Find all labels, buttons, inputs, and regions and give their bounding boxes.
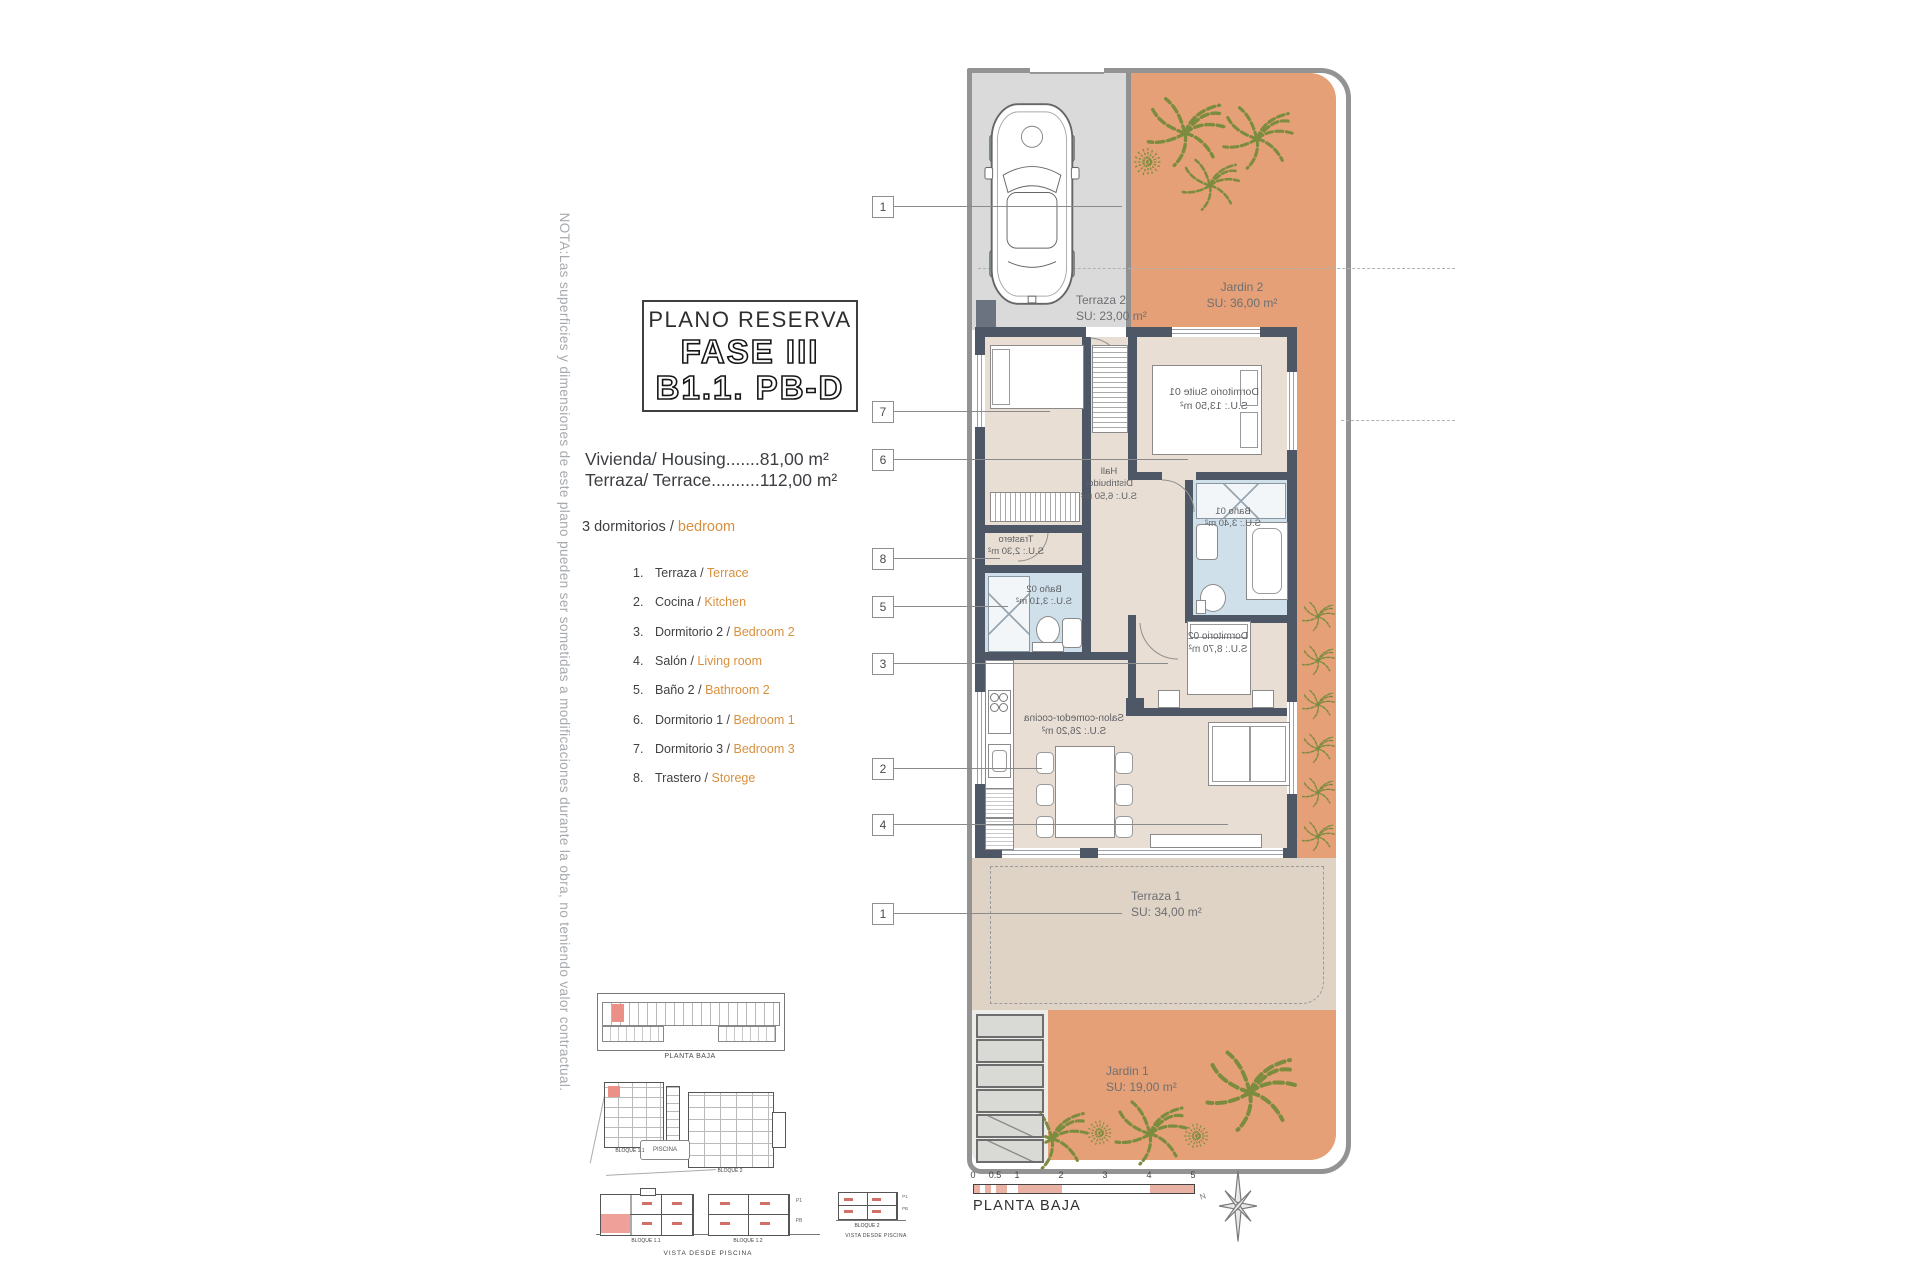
room-name: Hall [1072,466,1146,478]
legend-item-4: 4.Salón / Living room [633,654,873,672]
leader-line [892,606,1008,607]
appliance-box-1 [985,788,1014,818]
callout-2: 2 [872,758,894,780]
nightstand-dorm02-a [1158,690,1180,708]
callout-7: 7 [872,401,894,423]
label-salon: Salon-comedor-cocina S.U.: 26,20 m² [1008,712,1140,738]
room-area: SU: 23,00 m² [1076,309,1147,325]
pillow-suite-2 [1240,412,1258,448]
legend-num: 6. [633,713,655,727]
keyplan-strip-annex [718,1026,776,1042]
callout-number: 1 [880,907,887,921]
scale-bar [973,1184,1195,1194]
floor-label-pb: PB [792,1218,806,1224]
callout-1b: 1 [872,903,894,925]
planter-box [976,1139,1044,1163]
sofa-cushion [1212,726,1250,782]
legend-num: 3. [633,625,655,639]
bathtub-inner [1252,528,1282,594]
plan-caption: PLANTA BAJA [973,1198,1081,1214]
area-summary: Vivienda/ Housing.......81,00 m² Terraza… [585,449,837,492]
legend-es: Dormitorio 3 / [655,742,730,756]
callout-number: 2 [880,762,887,776]
callout-number: 8 [880,552,887,566]
site-block-annex [772,1112,786,1148]
site-bloque11-caption: BLOQUE 1.1 [600,1148,660,1154]
washbasin-bano02 [1062,618,1082,648]
legend-num: 2. [633,595,655,609]
legend-es: Dormitorio 1 / [655,713,730,727]
palm-tree-icon [1110,1092,1190,1172]
room-name: Baño 02 [1006,584,1082,596]
keyplan-strip [597,993,785,1051]
legend-es: Trastero / [655,771,708,785]
floor-label-p1: P1 [898,1194,912,1199]
phase-title: FASE III [681,335,820,369]
site-bloque2-caption: BLOQUE 2 [688,1168,772,1174]
room-name: Distribuidor [1072,478,1146,490]
room-area: S.U.: 6,50 m² [1072,491,1146,503]
elevation-building [708,1194,790,1236]
legend-es: Salón / [655,654,694,668]
terraza1-dashed-outline [990,866,1324,1004]
leader-line [892,663,1168,664]
leader-line [892,206,1122,207]
planter-box [976,1014,1044,1038]
callout-5: 5 [872,596,894,618]
room-name: Jardin 1 [1106,1064,1177,1080]
room-area: S.U.: 8,70 m² [1156,643,1280,656]
legend-item-5: 5.Baño 2 / Bathroom 2 [633,683,873,701]
label-trastero: Trastero S.U.: 2,30 m² [978,534,1054,559]
housing-area: Vivienda/ Housing.......81,00 m² [585,449,837,470]
room-name: Baño 01 [1196,506,1270,518]
door-arcs [960,60,1360,880]
unit-code-mark [672,1222,682,1225]
callout-number: 4 [880,818,887,832]
unit-code-mark [872,1198,881,1201]
chair [1115,784,1133,806]
callout-number: 5 [880,600,887,614]
unit-code-mark [760,1222,770,1225]
callout-number: 7 [880,405,887,419]
legend-item-7: 7.Dormitorio 3 / Bedroom 3 [633,742,873,760]
disclaimer-note-vertical: NOTA:Las superficies y dimensiones de es… [554,212,572,1092]
label-suite: Dormitorio Suite 01 S.U.: 13,50 m² [1148,386,1280,413]
elevation-building [838,1192,898,1220]
tick-label: 2 [1058,1170,1063,1180]
legend-en: Bedroom 1 [734,713,795,727]
legend-num: 7. [633,742,655,756]
callout-number: 6 [880,453,887,467]
callout-3: 3 [872,653,894,675]
tick-label: 5 [1190,1170,1195,1180]
room-area: SU: 34,00 m² [1131,905,1202,921]
callout-8: 8 [872,548,894,570]
legend-num: 8. [633,771,655,785]
floor-label-pb: PB [898,1206,912,1211]
room-name: Terraza 1 [1131,889,1202,905]
room-area: S.U.: 26,20 m² [1008,725,1140,738]
room-name: Dormitorio Suite 01 [1148,386,1280,400]
wardrobe-dorm3 [990,492,1080,522]
label-terraza2: Terraza 2 SU: 23,00 m² [1076,293,1147,324]
legend-item-2: 2.Cocina / Kitchen [633,595,873,613]
elevation-bloque2: P1 PB BLOQUE 2 VISTA DESDE PISCINA [836,1190,916,1244]
legend-es: Dormitorio 2 / [655,625,730,639]
bloque12-caption: BLOQUE 1.2 [708,1238,788,1244]
burner-icon [999,703,1008,712]
leader-line [892,459,1188,460]
tick-label: 0 [970,1170,975,1180]
nightstand-dorm02-b [1252,690,1274,708]
legend-en: Storege [712,771,756,785]
highlighted-unit [612,1004,624,1022]
room-area: S.U.: 3,40 m² [1196,518,1270,530]
legend-item-8: 8.Trastero / Storege [633,771,873,789]
legend-item-6: 6.Dormitorio 1 / Bedroom 1 [633,713,873,731]
roof-stub [640,1188,656,1196]
legend-en: Bathroom 2 [705,683,770,697]
callout-4: 4 [872,814,894,836]
site-plan: PISCINA BLOQUE 1.1 BLOQUE 2 [596,1076,792,1178]
bedrooms-line: 3 dormitorios / bedroom [582,519,735,535]
room-area: SU: 36,00 m² [1196,296,1288,312]
label-hall: Hall Distribuidor S.U.: 6,50 m² [1072,466,1146,503]
callout-1: 1 [872,196,894,218]
burner-icon [990,693,999,702]
legend-en: Kitchen [704,595,746,609]
floor-label-p1: P1 [792,1198,806,1204]
leader-line [892,558,1000,559]
legend-num: 1. [633,566,655,580]
unit-code-mark [760,1202,770,1205]
vista-caption: VISTA DESDE PISCINA [828,1233,924,1239]
callout-number: 3 [880,657,887,671]
tick-label: 3 [1102,1170,1107,1180]
toilet-tank-bano01 [1196,600,1206,614]
legend-en: Terrace [707,566,749,580]
room-area: S.U.: 2,30 m² [978,546,1054,558]
keyplan-strip-units [602,1002,780,1026]
chair [1036,816,1054,838]
legend-en: Bedroom 3 [734,742,795,756]
legend-en: Living room [697,654,762,668]
site-block-2 [688,1092,774,1168]
wardrobe-hall [1092,345,1128,433]
planter-box [976,1064,1044,1088]
room-name: Trastero [978,534,1054,546]
sofa-cushion [1250,726,1286,782]
unit-code: B1.1. PB-D [656,371,845,405]
legend-item-1: 1.Terraza / Terrace [633,566,873,584]
floor-plan-sheet: NOTA:Las superficies y dimensiones de es… [0,0,1920,1280]
legend-en: Bedroom 2 [734,625,795,639]
bloque2-caption: BLOQUE 2 [836,1223,898,1229]
plan-title: PLANO RESERVA [648,307,851,333]
chair [1115,816,1133,838]
terrace-area: Terraza/ Terrace..........112,00 m² [585,470,837,491]
room-name: Salon-comedor-cocina [1008,712,1140,725]
tick-label: 4 [1146,1170,1151,1180]
north-letter: N [1199,1191,1208,1201]
site-block-column [666,1086,680,1144]
unit-code-mark [642,1202,652,1205]
appliance-box-2 [985,818,1014,850]
title-block: PLANO RESERVA FASE III B1.1. PB-D [642,300,858,412]
chair [1115,752,1133,774]
leader-line [892,824,1228,825]
legend-es: Cocina / [655,595,701,609]
tv-bench [1150,834,1262,848]
highlighted-unit [601,1214,630,1233]
toilet-bano02 [1036,616,1060,644]
tick-label: 0.5 [989,1170,1002,1180]
room-area: S.U.: 3,10 m² [1006,596,1082,608]
planter-box [976,1114,1044,1138]
planter-box [976,1039,1044,1063]
room-name: Jardin 2 [1196,280,1288,296]
vista-caption: VISTA DESDE PISCINA [592,1250,824,1257]
room-area: S.U.: 13,50 m² [1148,400,1280,414]
tick-label: 1 [1014,1170,1019,1180]
pillow-dorm3 [992,349,1010,405]
toilet-tank-bano02 [1032,642,1064,652]
label-jardin1: Jardin 1 SU: 19,00 m² [1106,1064,1177,1095]
label-dorm02: Dormitorio 02 S.U.: 8,70 m² [1156,630,1280,656]
highlighted-unit [608,1086,620,1097]
scale-bar-ticks: 0 0.5 1 2 3 4 5 [973,1170,1203,1182]
unit-code-mark [720,1202,730,1205]
label-bano01: Baño 01 S.U.: 3,40 m² [1196,506,1270,531]
leader-line [892,913,1122,914]
unit-code-mark [720,1222,730,1225]
unit-code-mark [872,1210,881,1213]
callout-6: 6 [872,449,894,471]
burner-icon [990,703,999,712]
large-bush-icon [1200,1040,1300,1140]
ground-line [836,1220,906,1221]
elevation-bloque1: P1 PB BLOQUE 1.1 BLOQUE 1.2 VISTA DESDE … [592,1186,824,1260]
room-name: Dormitorio 02 [1156,630,1280,643]
leader-line [892,411,1050,412]
chair [1036,784,1054,806]
unit-code-mark [844,1210,853,1213]
legend-item-3: 3.Dormitorio 2 / Bedroom 2 [633,625,873,643]
leader-line [892,768,1042,769]
legend-num: 5. [633,683,655,697]
label-terraza1: Terraza 1 SU: 34,00 m² [1131,889,1202,920]
burner-icon [999,693,1008,702]
bedrooms-en: bedroom [678,519,735,535]
room-name: Terraza 2 [1076,293,1147,309]
legend-es: Terraza / [655,566,704,580]
bloque11-caption: BLOQUE 1.1 [600,1238,692,1244]
unit-code-mark [642,1222,652,1225]
bedrooms-es: 3 dormitorios / [582,519,674,535]
room-area: SU: 19,00 m² [1106,1080,1177,1096]
label-jardin2: Jardin 2 SU: 36,00 m² [1196,280,1288,311]
callout-number: 1 [880,200,887,214]
label-bano02: Baño 02 S.U.: 3,10 m² [1006,584,1082,609]
unit-code-mark [844,1198,853,1201]
unit-code-mark [672,1202,682,1205]
chair [1036,752,1054,774]
planter-box [976,1089,1044,1113]
keyplan-strip-annex [602,1026,664,1042]
legend-num: 4. [633,654,655,668]
north-compass-icon [1212,1168,1264,1244]
legend-es: Baño 2 / [655,683,702,697]
keyplan-strip-caption: PLANTA BAJA [597,1053,783,1060]
